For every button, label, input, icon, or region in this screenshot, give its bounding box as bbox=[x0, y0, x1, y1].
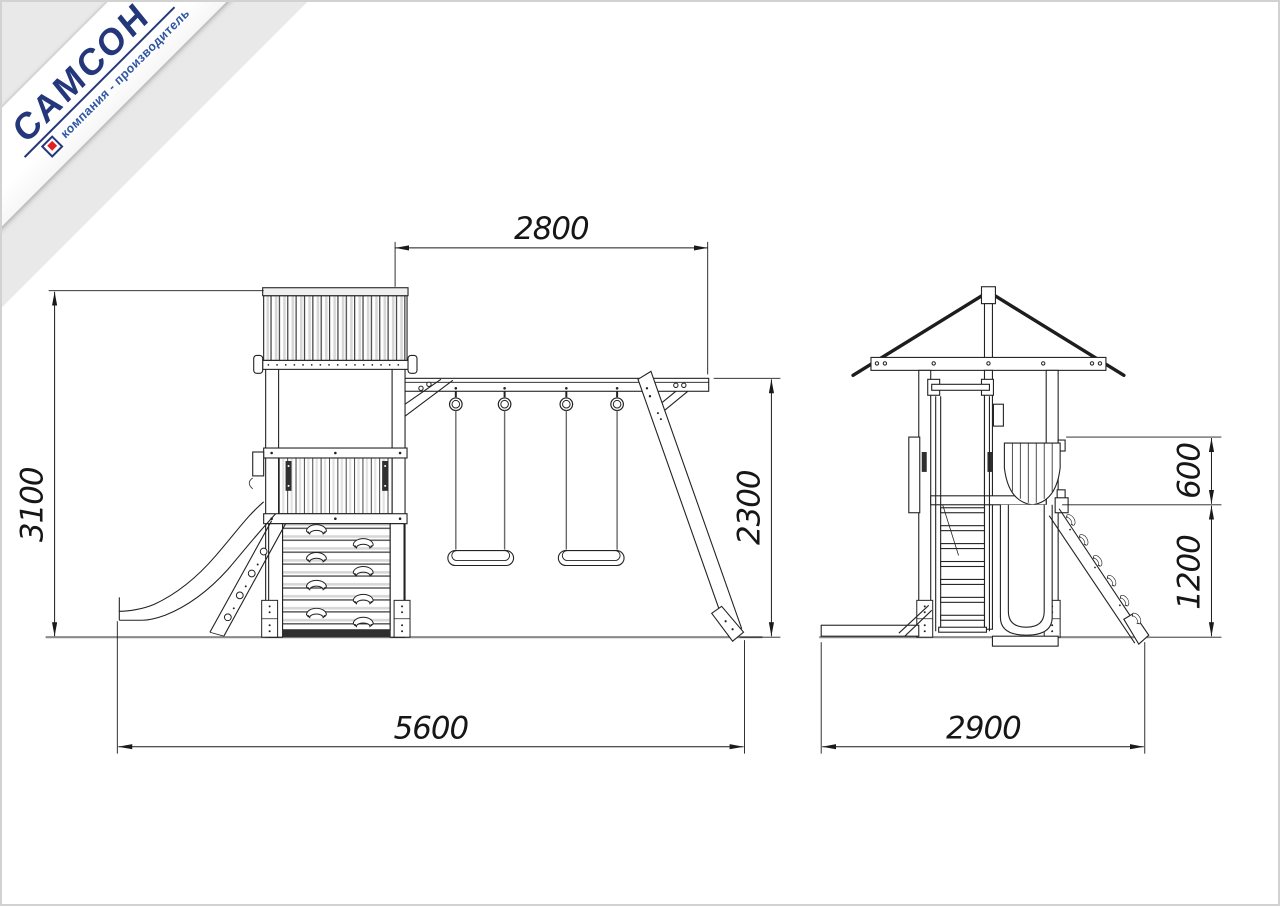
dim-total-width: 5600 bbox=[117, 621, 744, 753]
tower-base-plate bbox=[262, 600, 278, 637]
climbing-ramp bbox=[1049, 498, 1149, 644]
dim-total-height: 3100 bbox=[15, 291, 264, 636]
dim-label-2300: 2300 bbox=[731, 470, 767, 545]
interior-ladder bbox=[936, 396, 990, 632]
dim-label-2800: 2800 bbox=[514, 211, 589, 247]
tower-railing bbox=[249, 448, 407, 524]
dim-label-5600: 5600 bbox=[394, 711, 469, 747]
tower-upper-panel bbox=[254, 288, 417, 374]
side-view: 600 1200 2900 bbox=[819, 287, 1221, 754]
roof bbox=[853, 287, 1124, 376]
dim-label-600: 600 bbox=[1172, 443, 1208, 499]
swing-1 bbox=[448, 387, 514, 566]
tower bbox=[249, 288, 417, 637]
technical-drawing: 2800 3100 2300 5600 bbox=[2, 2, 1278, 904]
dim-beam-span: 2800 bbox=[395, 211, 708, 374]
slide-entry-bracket bbox=[253, 452, 264, 476]
dim-label-3100: 3100 bbox=[15, 467, 51, 542]
swing-beam bbox=[405, 378, 709, 391]
roof-cap bbox=[981, 287, 995, 304]
grab-bar bbox=[932, 384, 990, 390]
dim-deck-height: 1200 bbox=[1150, 506, 1222, 637]
foot-beam bbox=[821, 625, 919, 636]
dim-total-depth: 2900 bbox=[821, 642, 1145, 754]
page: 2800 3100 2300 5600 bbox=[0, 0, 1280, 906]
dim-label-1200: 1200 bbox=[1172, 535, 1208, 610]
slide-end bbox=[992, 505, 1058, 646]
front-view: 2800 3100 2300 5600 bbox=[15, 211, 781, 754]
dim-upper-offset: 600 bbox=[1062, 437, 1221, 505]
dim-label-2900: 2900 bbox=[946, 711, 1021, 747]
slide bbox=[119, 502, 275, 620]
side-board bbox=[909, 437, 920, 513]
a-frame-leg bbox=[638, 371, 742, 636]
climbing-wall bbox=[262, 524, 410, 637]
swing-2 bbox=[558, 387, 624, 566]
